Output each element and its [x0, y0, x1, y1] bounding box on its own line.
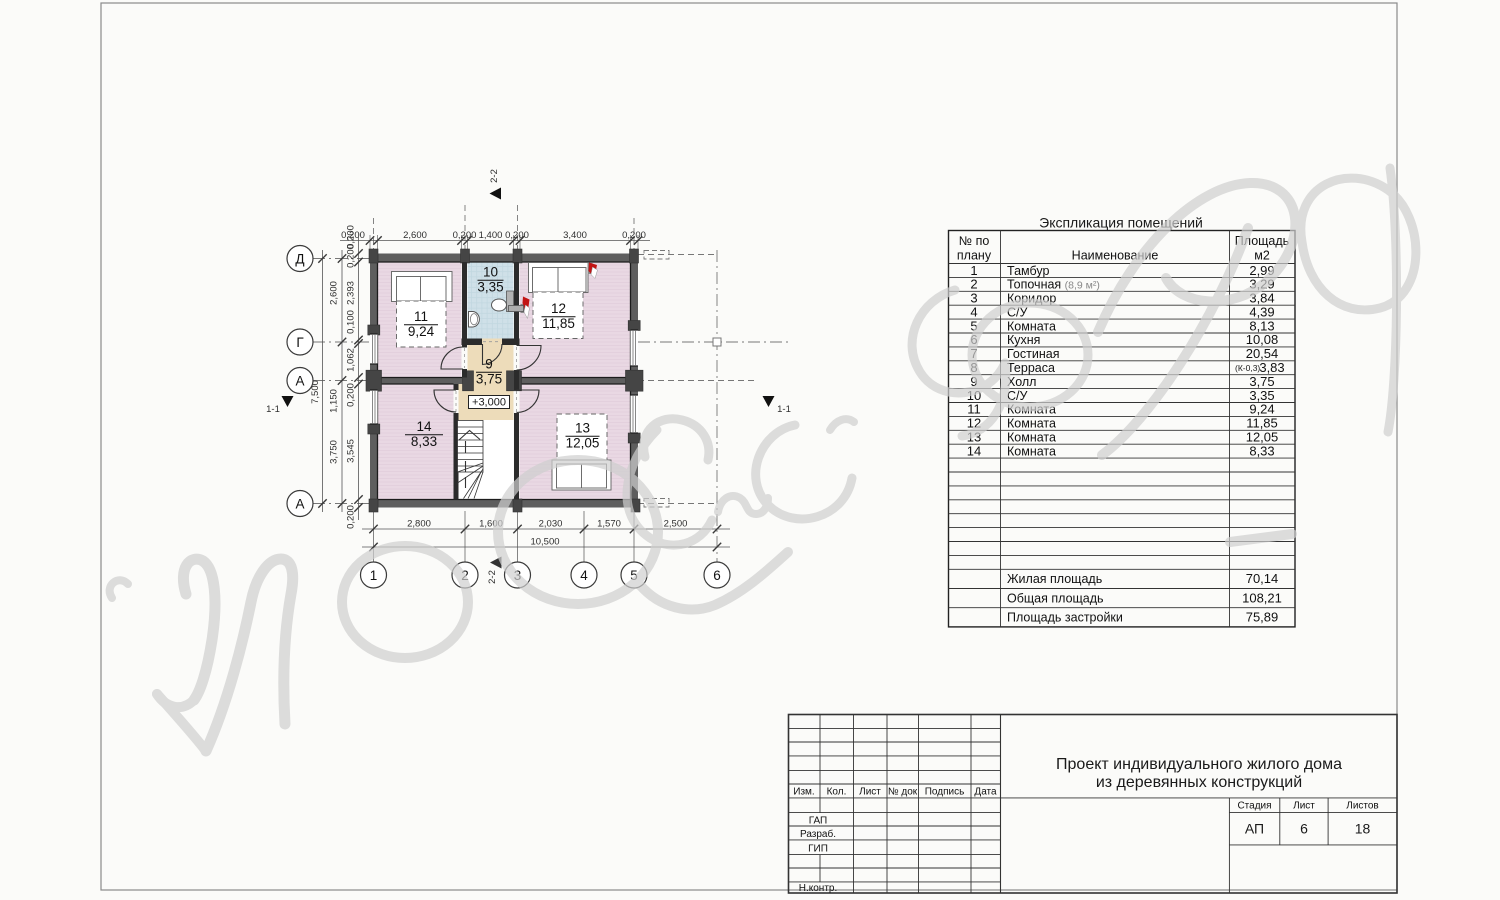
svg-text:Подпись: Подпись	[925, 787, 965, 798]
svg-text:11: 11	[414, 309, 428, 324]
svg-text:А: А	[295, 496, 304, 511]
svg-text:Лист: Лист	[859, 787, 881, 798]
svg-text:4,39: 4,39	[1249, 304, 1274, 319]
svg-text:Терраса: Терраса	[1007, 361, 1055, 375]
svg-text:2,600: 2,600	[403, 230, 427, 241]
svg-text:18: 18	[1355, 821, 1371, 837]
svg-text:9,24: 9,24	[408, 324, 435, 339]
svg-text:Комната: Комната	[1007, 319, 1056, 333]
svg-text:0,200: 0,200	[346, 244, 357, 268]
svg-text:6: 6	[713, 568, 721, 583]
svg-text:3,35: 3,35	[1249, 388, 1274, 403]
svg-text:1: 1	[970, 263, 977, 278]
svg-text:0,200: 0,200	[622, 230, 646, 241]
svg-text:Г: Г	[296, 335, 304, 350]
svg-text:из деревянных конструкций: из деревянных конструкций	[1096, 774, 1302, 791]
svg-text:3,400: 3,400	[563, 230, 587, 241]
svg-text:3,75: 3,75	[1249, 374, 1274, 389]
svg-text:12,05: 12,05	[566, 436, 600, 451]
svg-text:Листов: Листов	[1346, 801, 1379, 812]
svg-text:плану: плану	[957, 249, 992, 263]
svg-text:11: 11	[967, 402, 981, 417]
svg-text:0,100: 0,100	[346, 310, 357, 334]
svg-text:9: 9	[485, 357, 493, 372]
svg-text:Изм.: Изм.	[793, 787, 814, 798]
svg-text:2,500: 2,500	[664, 519, 688, 530]
svg-text:Жилая площадь: Жилая площадь	[1007, 572, 1102, 586]
svg-text:Дата: Дата	[974, 787, 997, 798]
svg-text:2,800: 2,800	[407, 519, 431, 530]
svg-text:Гостиная: Гостиная	[1007, 347, 1059, 361]
svg-text:(К-0,3): (К-0,3)	[1235, 363, 1260, 373]
svg-text:8,33: 8,33	[411, 434, 437, 449]
svg-text:10: 10	[483, 265, 498, 280]
svg-text:14: 14	[416, 419, 432, 434]
svg-text:Н.контр.: Н.контр.	[799, 883, 838, 894]
svg-text:2,393: 2,393	[346, 281, 357, 305]
svg-text:3,83: 3,83	[1259, 360, 1284, 375]
svg-text:Топочная (8,9 м²): Топочная (8,9 м²)	[1007, 278, 1100, 292]
svg-text:70,14: 70,14	[1246, 571, 1279, 586]
svg-text:14: 14	[967, 443, 981, 458]
svg-text:2,600: 2,600	[329, 281, 340, 305]
svg-text:8,13: 8,13	[1249, 318, 1274, 333]
svg-text:3,35: 3,35	[477, 280, 503, 295]
svg-text:1,400: 1,400	[479, 230, 503, 241]
svg-text:Комната: Комната	[1007, 417, 1056, 431]
svg-text:1,150: 1,150	[329, 389, 340, 413]
svg-text:8,33: 8,33	[1249, 443, 1274, 458]
svg-text:№ док: № док	[888, 787, 918, 798]
svg-text:м2: м2	[1254, 249, 1270, 263]
svg-text:Проект индивидуального жилого: Проект индивидуального жилого дома	[1056, 756, 1342, 773]
svg-text:12: 12	[551, 301, 566, 316]
svg-text:2-2: 2-2	[489, 169, 500, 183]
svg-text:12,05: 12,05	[1246, 430, 1279, 445]
svg-text:Разраб.: Разраб.	[800, 828, 836, 840]
svg-text:Комната: Комната	[1007, 431, 1056, 445]
svg-text:+3,000: +3,000	[472, 397, 506, 409]
svg-text:ГАП: ГАП	[809, 816, 828, 827]
svg-text:9,24: 9,24	[1249, 402, 1274, 417]
svg-text:3: 3	[970, 291, 977, 306]
svg-text:Общая площадь: Общая площадь	[1007, 591, 1104, 605]
svg-text:Лист: Лист	[1293, 801, 1315, 812]
svg-text:1: 1	[370, 568, 378, 583]
svg-text:3,750: 3,750	[329, 440, 340, 464]
svg-text:Стадия: Стадия	[1237, 801, 1271, 812]
svg-text:10,08: 10,08	[1246, 332, 1279, 347]
svg-text:Холл: Холл	[1007, 375, 1036, 389]
svg-text:3,545: 3,545	[346, 439, 357, 463]
svg-text:А: А	[295, 373, 304, 388]
svg-text:3,75: 3,75	[476, 372, 502, 387]
svg-text:13: 13	[575, 421, 590, 436]
svg-text:6: 6	[1300, 821, 1308, 837]
svg-text:Площадь застройки: Площадь застройки	[1007, 611, 1123, 625]
svg-text:Тамбур: Тамбур	[1007, 264, 1049, 278]
svg-text:1,062: 1,062	[346, 348, 357, 372]
svg-text:АП: АП	[1245, 821, 1264, 837]
svg-text:11,85: 11,85	[1246, 416, 1278, 431]
svg-text:Кухня: Кухня	[1007, 333, 1040, 347]
svg-text:10,500: 10,500	[530, 537, 559, 548]
svg-text:1-1: 1-1	[777, 404, 791, 415]
svg-text:108,21: 108,21	[1242, 590, 1282, 605]
svg-text:0,200: 0,200	[346, 383, 357, 407]
svg-text:1,570: 1,570	[597, 519, 621, 530]
svg-text:11,85: 11,85	[542, 316, 575, 331]
svg-text:2: 2	[970, 277, 977, 292]
svg-text:20,54: 20,54	[1246, 346, 1279, 361]
svg-text:2-2: 2-2	[487, 570, 498, 584]
svg-text:0,200: 0,200	[505, 230, 529, 241]
svg-text:0,200: 0,200	[346, 505, 357, 529]
svg-text:75,89: 75,89	[1246, 610, 1279, 625]
svg-text:2,030: 2,030	[539, 519, 563, 530]
svg-text:4: 4	[970, 304, 977, 319]
svg-text:0,200: 0,200	[453, 230, 477, 241]
svg-text:1-1: 1-1	[266, 404, 280, 415]
svg-text:Кол.: Кол.	[827, 787, 847, 798]
svg-text:№ по: № по	[959, 234, 990, 248]
svg-text:4: 4	[580, 568, 588, 583]
svg-text:Комната: Комната	[1007, 444, 1056, 458]
svg-text:Д: Д	[295, 251, 304, 266]
svg-text:ГИП: ГИП	[808, 844, 828, 855]
